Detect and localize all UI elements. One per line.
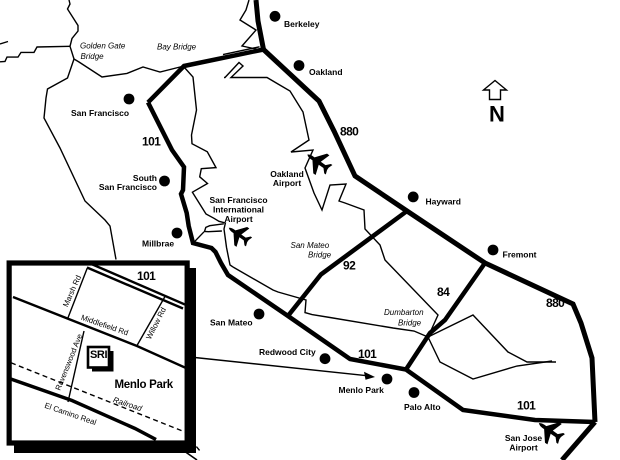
- svg-text:Palo Alto: Palo Alto: [404, 402, 441, 412]
- svg-text:880: 880: [340, 125, 359, 139]
- svg-text:84: 84: [437, 285, 450, 299]
- svg-text:Fremont: Fremont: [503, 250, 537, 260]
- svg-text:Hayward: Hayward: [426, 197, 461, 207]
- svg-text:101: 101: [358, 347, 377, 361]
- svg-text:San Mateo: San Mateo: [210, 318, 253, 328]
- svg-text:Bridge: Bridge: [308, 251, 332, 260]
- svg-text:Airport: Airport: [509, 443, 538, 453]
- svg-text:Airport: Airport: [224, 214, 253, 224]
- svg-text:San Mateo: San Mateo: [291, 241, 330, 250]
- svg-text:Menlo Park: Menlo Park: [339, 385, 385, 395]
- svg-text:San Jose: San Jose: [505, 433, 543, 443]
- svg-text:Redwood City: Redwood City: [259, 347, 316, 357]
- svg-text:Bay Bridge: Bay Bridge: [157, 43, 197, 52]
- svg-text:N: N: [489, 102, 505, 127]
- svg-text:San Francisco: San Francisco: [99, 182, 157, 192]
- svg-text:101: 101: [517, 399, 536, 413]
- svg-text:Millbrae: Millbrae: [142, 239, 174, 249]
- svg-text:Bridge: Bridge: [81, 52, 105, 61]
- svg-text:Airport: Airport: [273, 178, 302, 188]
- svg-text:101: 101: [137, 269, 156, 283]
- svg-text:Menlo Park: Menlo Park: [115, 379, 174, 391]
- svg-text:Berkeley: Berkeley: [284, 19, 320, 29]
- svg-text:SRI: SRI: [90, 349, 107, 361]
- svg-text:Bridge: Bridge: [398, 319, 422, 328]
- svg-text:San Francisco: San Francisco: [209, 195, 267, 205]
- svg-text:International: International: [213, 205, 264, 215]
- svg-text:Oakland: Oakland: [309, 67, 343, 77]
- svg-text:92: 92: [343, 259, 356, 273]
- svg-text:101: 101: [142, 134, 161, 148]
- svg-text:Dumbarton: Dumbarton: [384, 308, 424, 317]
- svg-text:San Francisco: San Francisco: [71, 108, 129, 118]
- svg-text:Golden Gate: Golden Gate: [80, 42, 126, 51]
- svg-text:880: 880: [546, 296, 565, 310]
